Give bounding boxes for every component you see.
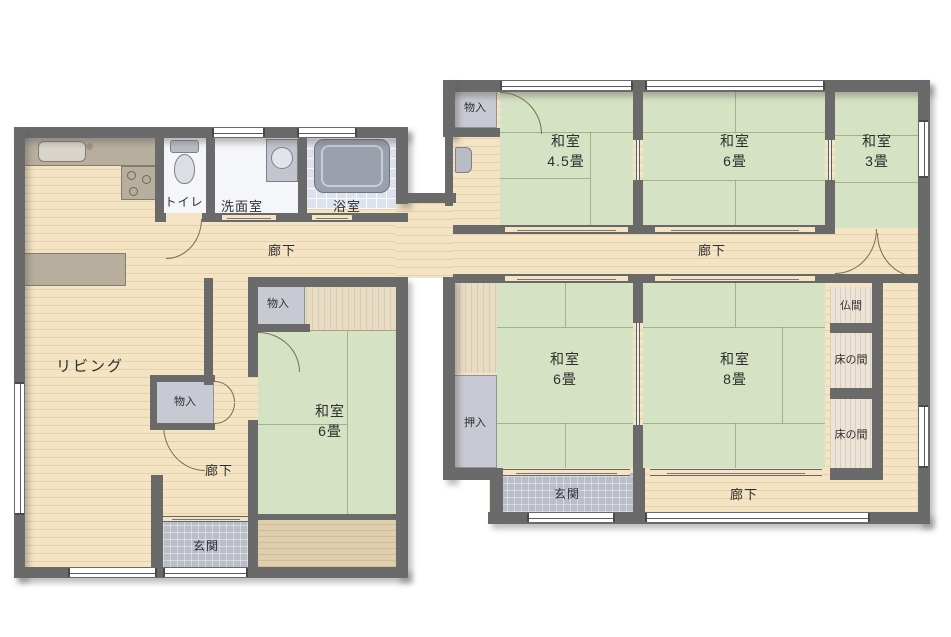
wood-strip-lower-left-room <box>306 287 396 331</box>
room-label-hallway-right-top: 廊下 <box>682 242 742 261</box>
room-size: 4.5畳 <box>523 151 609 171</box>
window-opening <box>645 513 870 522</box>
room-label-washitsu-6-bottom: 和室 6畳 <box>522 349 608 390</box>
stove-unit <box>121 166 157 200</box>
fusuma-partition <box>636 140 640 180</box>
wall-segment <box>633 180 643 225</box>
room-size: 8畳 <box>692 369 778 389</box>
kitchen-sink <box>38 141 86 162</box>
wood-floor-lower-left <box>258 520 396 567</box>
tatami-mat-line <box>643 423 825 424</box>
room-label-storage-2: 物入 <box>160 395 210 411</box>
wall-segment <box>633 468 645 522</box>
bathtub-inner <box>321 145 383 187</box>
outside-notch <box>443 480 489 514</box>
tatami-mat-line <box>735 90 736 132</box>
sliding-door <box>503 469 630 476</box>
wall-segment <box>633 283 643 323</box>
wall-segment <box>825 180 835 225</box>
room-label-storage-1: 物入 <box>253 297 303 313</box>
room-label-entrance-left: 玄関 <box>176 538 236 555</box>
wall-segment <box>490 468 503 522</box>
sliding-door <box>655 226 815 233</box>
sliding-door <box>655 275 815 282</box>
wall-segment <box>248 420 258 578</box>
tatami-mat-line <box>735 283 736 327</box>
entrance-door-opening <box>527 513 615 522</box>
room-name: 和室 <box>287 401 373 421</box>
stove-burner <box>127 171 136 180</box>
wall-segment <box>396 277 408 578</box>
kitchen-island-counter <box>24 253 126 286</box>
room-label-tokonoma-2: 床の間 <box>821 428 881 444</box>
room-size: 3畳 <box>834 151 920 171</box>
room-label-washroom: 洗面室 <box>207 198 277 217</box>
tatami-mat-line <box>782 327 783 423</box>
room-size: 6畳 <box>287 421 373 441</box>
wall-segment <box>445 128 453 206</box>
room-label-butsuma: 仏間 <box>826 299 876 315</box>
room-label-storage-right-block: 物入 <box>450 101 500 117</box>
wall-segment <box>204 278 213 385</box>
wall-segment <box>150 375 215 382</box>
room-name: 和室 <box>523 131 609 151</box>
sliding-door <box>505 226 628 233</box>
wall-segment <box>830 468 883 480</box>
tatami-mat-line <box>835 182 918 183</box>
room-label-washitsu-4-5: 和室 4.5畳 <box>523 131 609 172</box>
kitchen-faucet <box>86 143 93 150</box>
window-opening <box>15 382 24 515</box>
room-size: 6畳 <box>692 151 778 171</box>
fusuma-partition <box>636 323 640 425</box>
tatami-mat-line <box>735 180 736 228</box>
room-label-washitsu-6-top: 和室 6畳 <box>692 131 778 172</box>
room-label-washitsu-6-lower-left: 和室 6畳 <box>287 401 373 442</box>
window-opening <box>500 81 633 90</box>
corridor-sink <box>455 147 472 173</box>
room-label-entrance-right: 玄関 <box>537 486 597 503</box>
room-name: 和室 <box>834 131 920 151</box>
room-label-living: リビング <box>40 356 140 378</box>
wall-segment <box>248 277 408 287</box>
room-size: 6畳 <box>522 369 608 389</box>
tatami-mat-line <box>643 180 825 181</box>
room-label-hallway-lower-left: 廊下 <box>189 462 249 481</box>
tatami-mat-line <box>497 327 633 328</box>
wood-strip-right-block <box>453 283 497 373</box>
room-label-washitsu-8: 和室 8畳 <box>692 349 778 390</box>
room-label-toilet: トイレ <box>158 194 210 211</box>
tatami-mat-line <box>500 178 590 179</box>
window-opening <box>212 128 265 137</box>
room-label-oshiire: 押入 <box>450 416 500 432</box>
window-opening <box>645 81 825 90</box>
washbasin-bowl <box>271 147 293 169</box>
wall-segment <box>151 475 163 578</box>
wall-segment <box>248 514 408 520</box>
window-opening <box>297 128 357 137</box>
wall-segment <box>443 277 455 480</box>
wall-segment <box>633 425 643 468</box>
wall-segment <box>298 133 307 221</box>
room-label-hallway-right-bottom: 廊下 <box>714 486 774 505</box>
toilet-bowl <box>174 154 195 184</box>
toilet-tank <box>170 140 199 153</box>
tatami-mat-line <box>735 423 736 468</box>
room-name: 和室 <box>692 131 778 151</box>
floor-plan: リビング トイレ 洗面室 浴室 廊下 物入 物入 和室 6畳 廊下 玄関 物入 … <box>0 0 951 637</box>
wall-segment <box>248 324 310 332</box>
room-name: 和室 <box>692 349 778 369</box>
stove-burner <box>129 187 138 196</box>
wall-segment <box>150 375 157 430</box>
room-label-washitsu-3: 和室 3畳 <box>834 131 920 172</box>
entrance-door-opening <box>163 568 248 577</box>
wall-segment <box>830 388 872 399</box>
room-label-bathroom: 浴室 <box>317 198 377 217</box>
sliding-door <box>163 516 248 522</box>
sliding-door <box>650 469 822 476</box>
window-opening <box>919 120 928 178</box>
window-opening <box>68 568 157 577</box>
tatami-mat-line <box>643 327 825 328</box>
wall-segment <box>633 92 643 140</box>
stove-burner <box>142 175 151 184</box>
tatami-mat-line <box>565 423 566 468</box>
room-label-tokonoma-1: 床の間 <box>821 353 881 369</box>
room-label-hallway-top-left: 廊下 <box>252 242 312 261</box>
room-name: 和室 <box>522 349 608 369</box>
fusuma-partition <box>828 140 832 180</box>
sliding-door <box>505 275 628 282</box>
wall-segment <box>830 323 872 333</box>
tatami-mat-line <box>565 283 566 327</box>
window-opening <box>919 405 928 468</box>
